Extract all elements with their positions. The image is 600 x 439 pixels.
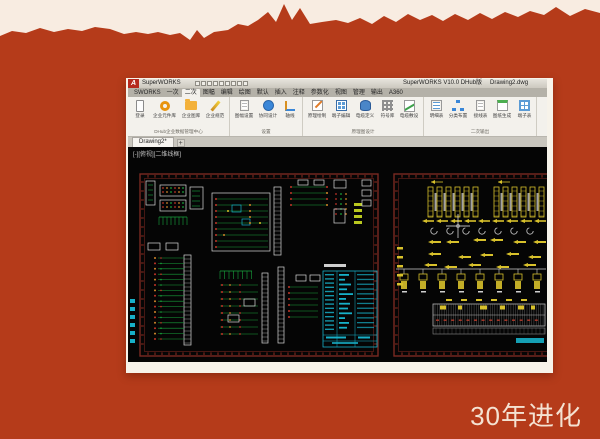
ribbon-group: 明细表分类布置接线表图纸生成端子表二次输出 — [424, 97, 537, 136]
ribbon-tab-管理[interactable]: 管理 — [350, 89, 368, 97]
save-as-icon[interactable] — [213, 81, 218, 86]
ribbon-button-接线表[interactable]: 接线表 — [471, 98, 489, 119]
product-name: SuperWORKS — [142, 79, 181, 88]
table-icon — [519, 100, 530, 111]
ribbon-group: 图幅设置协同设计轴线设置 — [230, 97, 303, 136]
ribbon: 登录企业元件库企业图库企业规范DHub企业数据管理中心图幅设置协同设计轴线设置原… — [128, 97, 547, 137]
ribbon-button-label: 协同设计 — [259, 112, 277, 118]
torn-paper-edge — [0, 0, 600, 45]
viewport-controls[interactable]: [-][俯视][二维线框] — [133, 149, 181, 158]
ribbon-group-label: DHub企业数据管理中心 — [135, 129, 222, 135]
ribbon-tab-插入[interactable]: 插入 — [272, 89, 290, 97]
ring-icon — [160, 101, 170, 111]
ribbon-tabs: SWORKS一次二次图幅编辑绘图默认插入注释参数化视图管理输出A360 — [128, 88, 547, 97]
folder-icon — [185, 101, 197, 110]
ribbon-button-企业规范[interactable]: 企业规范 — [204, 98, 226, 119]
save-icon[interactable] — [207, 81, 212, 86]
ribbon-group: 原理绘制端子编辑电缆定义符号库电缆敷设原理图设计 — [303, 97, 424, 136]
ribbon-button-label: 企业规范 — [206, 112, 224, 118]
cable-icon — [404, 100, 415, 112]
ribbon-tab-A360[interactable]: A360 — [386, 89, 406, 97]
tablet-icon — [136, 100, 144, 112]
ribbon-tab-绘图[interactable]: 绘图 — [236, 89, 254, 97]
ribbon-button-登录[interactable]: 登录 — [131, 98, 149, 119]
ribbon-button-label: 原理绘制 — [308, 112, 326, 118]
minigrid-icon — [382, 100, 393, 111]
ribbon-button-label: 登录 — [135, 112, 144, 118]
ribbon-button-符号库[interactable]: 符号库 — [378, 98, 396, 119]
slide-caption: 30年进化 — [470, 396, 582, 433]
ribbon-button-轴线[interactable]: 轴线 — [281, 98, 299, 119]
file-tab-drawing2[interactable]: Drawing2* — [132, 137, 174, 147]
ribbon-button-label: 接线表 — [473, 112, 487, 118]
ribbon-group-label: 原理图设计 — [311, 129, 416, 135]
ribbon-tab-视图[interactable]: 视图 — [332, 89, 350, 97]
ribbon-button-明细表[interactable]: 明细表 — [427, 98, 445, 119]
ribbon-button-label: 明细表 — [429, 112, 443, 118]
app-logo-button[interactable]: A — [128, 79, 139, 88]
ribbon-group-label: 设置 — [236, 129, 297, 135]
ribbon-button-label: 图幅设置 — [235, 112, 253, 118]
undo-icon[interactable] — [219, 81, 224, 86]
ribbon-tab-图幅[interactable]: 图幅 — [200, 89, 218, 97]
pencil-icon — [312, 100, 323, 111]
ribbon-button-label: 轴线 — [285, 112, 294, 118]
new-tab-button[interactable]: + — [177, 139, 185, 147]
drawing-canvas[interactable]: [-][俯视][二维线框] — [128, 147, 547, 362]
paper-strip — [0, 0, 600, 40]
document-name: Drawing2.dwg — [490, 79, 528, 88]
ribbon-tab-二次[interactable]: 二次 — [182, 89, 200, 97]
ribbon-button-label: 图纸生成 — [493, 112, 511, 118]
ribbon-button-label: 分类布置 — [449, 112, 467, 118]
cad-drawing — [128, 147, 547, 362]
quick-access-toolbar — [195, 81, 248, 86]
gen-icon — [497, 100, 508, 111]
version-title: SuperWORKS V10.0 DHub版 — [403, 79, 482, 88]
new-file-icon[interactable] — [195, 81, 200, 86]
redo-icon[interactable] — [225, 81, 230, 86]
ribbon-tab-编辑[interactable]: 编辑 — [218, 89, 236, 97]
ribbon-button-label: 企业图库 — [182, 112, 200, 118]
ribbon-button-企业图库[interactable]: 企业图库 — [180, 98, 202, 119]
plot-icon[interactable] — [231, 81, 236, 86]
ribbon-button-电缆敷设[interactable]: 电缆敷设 — [398, 98, 420, 119]
ribbon-button-分类布置[interactable]: 分类布置 — [447, 98, 469, 119]
ribbon-button-label: 电缆敷设 — [400, 112, 418, 118]
ribbon-button-图幅设置[interactable]: 图幅设置 — [233, 98, 255, 119]
refresh-icon[interactable] — [237, 81, 242, 86]
window-title: SuperWORKS V10.0 DHub版 Drawing2.dwg — [403, 79, 528, 88]
ribbon-group: 登录企业元件库企业图库企业规范DHub企业数据管理中心 — [128, 97, 230, 136]
ribbon-tab-SWORKS[interactable]: SWORKS — [131, 89, 164, 97]
doc-icon — [240, 100, 249, 111]
ribbon-button-企业元件库[interactable]: 企业元件库 — [151, 98, 178, 119]
doc-icon — [476, 100, 485, 111]
ribbon-tab-默认[interactable]: 默认 — [254, 89, 272, 97]
blue-circle-icon — [263, 100, 274, 111]
ribbon-button-原理绘制[interactable]: 原理绘制 — [306, 98, 328, 119]
ribbon-button-label: 符号库 — [380, 112, 394, 118]
app-window: A SuperWORKS SuperWORKS V10.0 DHub版 Draw… — [128, 79, 547, 362]
org-icon — [452, 100, 464, 111]
wand-icon — [210, 100, 220, 111]
axis-icon — [285, 101, 295, 111]
ribbon-button-label: 端子表 — [517, 112, 531, 118]
ribbon-button-label: 端子编辑 — [332, 112, 350, 118]
db-icon — [360, 100, 371, 111]
list-icon — [431, 100, 442, 111]
ribbon-button-图纸生成[interactable]: 图纸生成 — [491, 98, 513, 119]
grid-icon — [336, 100, 347, 111]
titlebar: A SuperWORKS SuperWORKS V10.0 DHub版 Draw… — [128, 79, 547, 88]
ribbon-tab-一次[interactable]: 一次 — [164, 89, 182, 97]
ribbon-button-label: 企业元件库 — [153, 112, 176, 118]
screenshot-frame: A SuperWORKS SuperWORKS V10.0 DHub版 Draw… — [126, 78, 553, 373]
ribbon-tab-输出[interactable]: 输出 — [368, 89, 386, 97]
ribbon-tab-注释[interactable]: 注释 — [290, 89, 308, 97]
ribbon-group-label: 二次输出 — [431, 129, 529, 135]
ribbon-button-端子表[interactable]: 端子表 — [515, 98, 533, 119]
file-tab-bar: Drawing2* + — [128, 137, 547, 147]
ribbon-button-协同设计[interactable]: 协同设计 — [257, 98, 279, 119]
ribbon-button-电缆定义[interactable]: 电缆定义 — [354, 98, 376, 119]
customize-dropdown-icon[interactable] — [243, 81, 248, 86]
ribbon-button-label: 电缆定义 — [356, 112, 374, 118]
open-file-icon[interactable] — [201, 81, 206, 86]
ribbon-tab-参数化[interactable]: 参数化 — [308, 89, 332, 97]
ribbon-button-端子编辑[interactable]: 端子编辑 — [330, 98, 352, 119]
